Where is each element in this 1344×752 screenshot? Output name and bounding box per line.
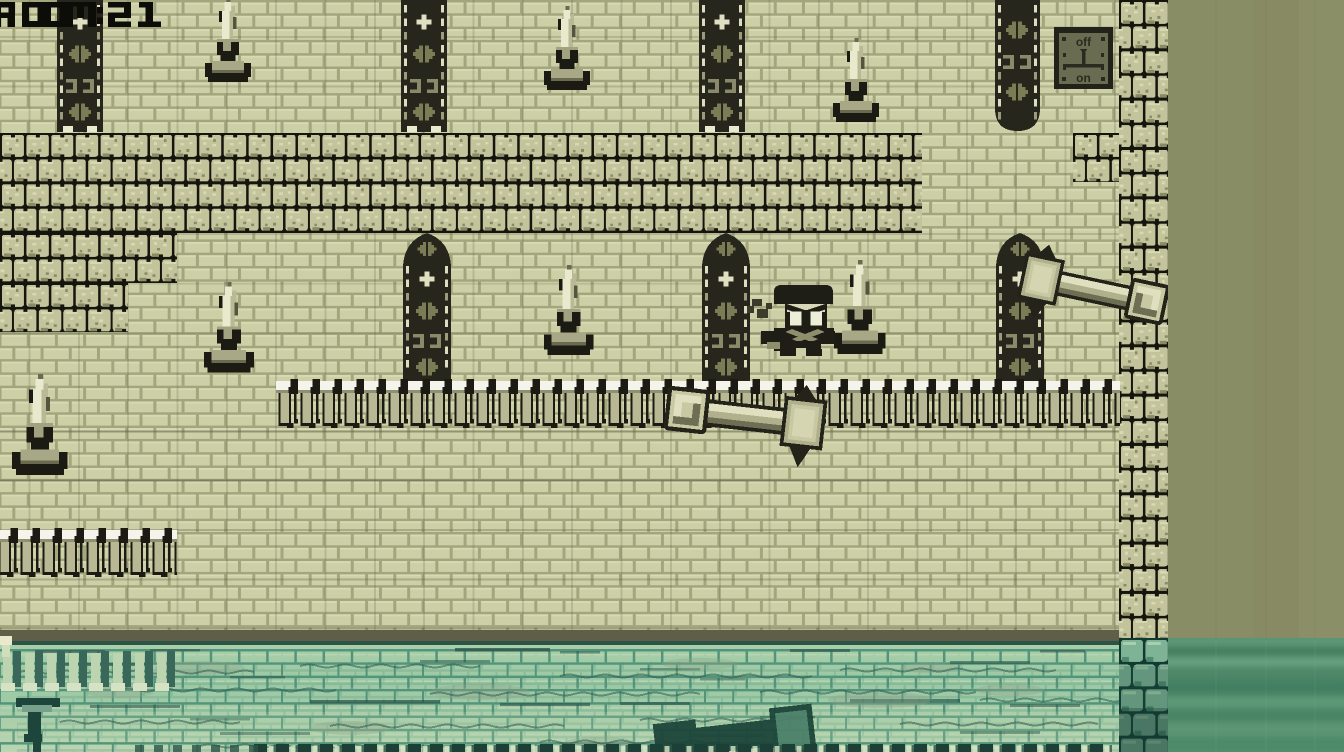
- svg-text:on: on: [1076, 71, 1091, 85]
- svg-text:off: off: [1076, 35, 1092, 49]
